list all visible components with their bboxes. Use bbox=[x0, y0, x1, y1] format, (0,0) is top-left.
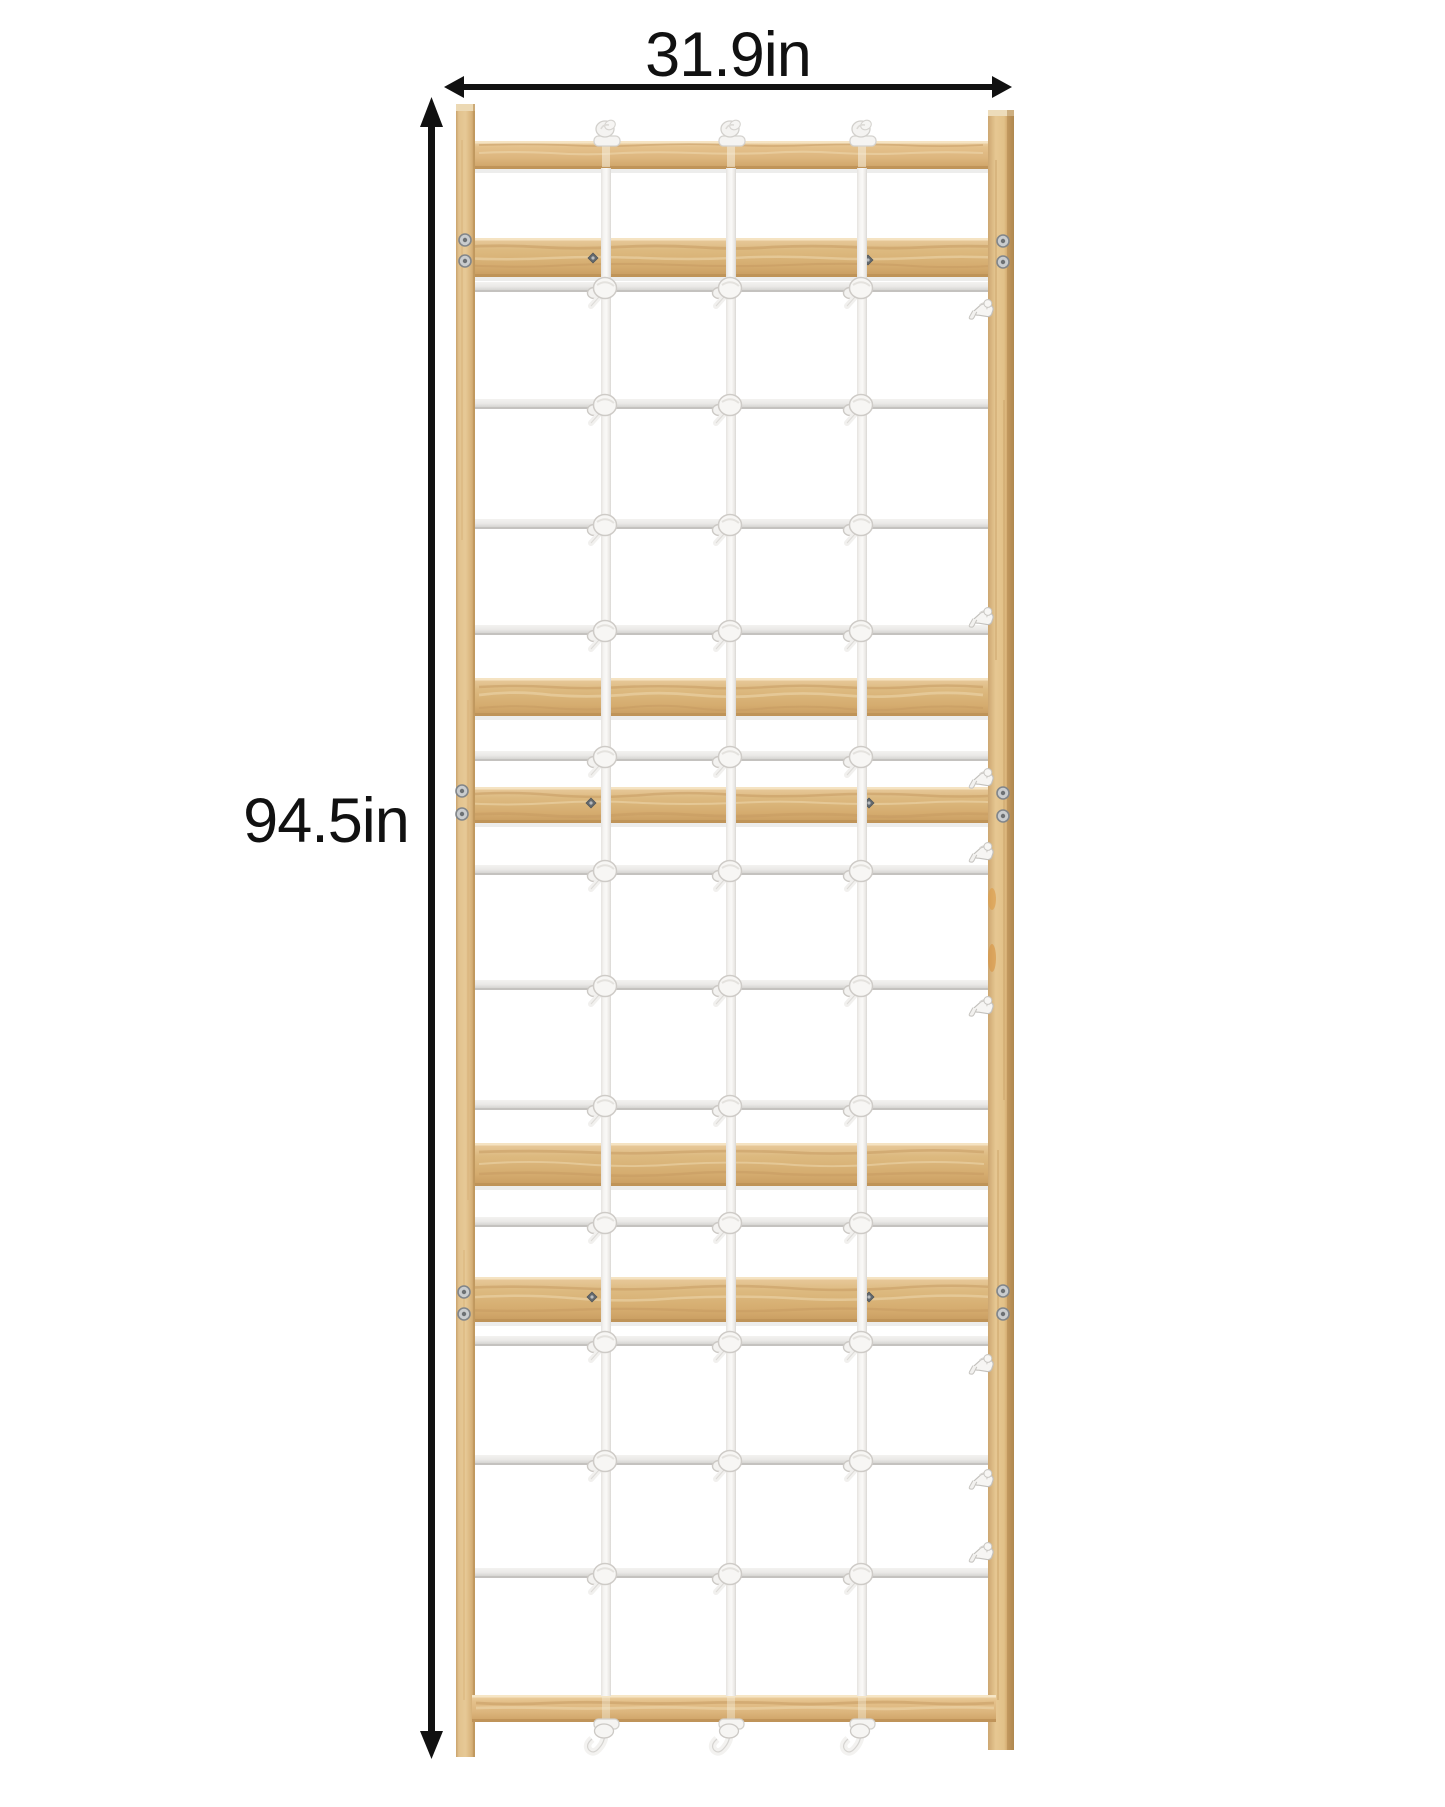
svg-text:31.9in: 31.9in bbox=[645, 20, 811, 90]
svg-text:94.5in: 94.5in bbox=[243, 786, 409, 856]
